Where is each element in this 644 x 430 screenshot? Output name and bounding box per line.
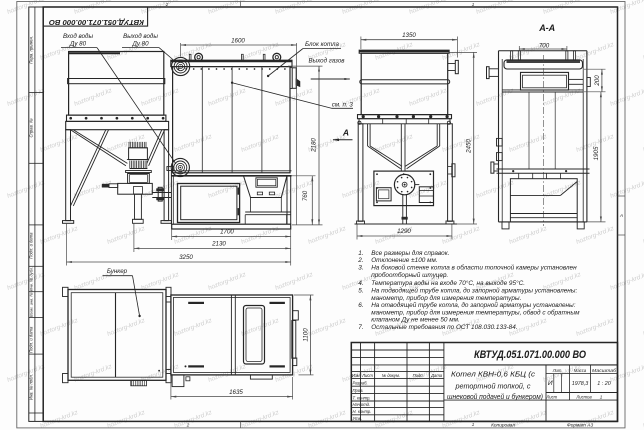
svg-text:КВТУД.051.071.00.000 ВО: КВТУД.051.071.00.000 ВО (49, 18, 144, 27)
svg-text:Котел КВН-0,6 КБЦ (с: Котел КВН-0,6 КБЦ (с (451, 370, 535, 379)
svg-text:200: 200 (594, 75, 601, 87)
svg-text:760: 760 (302, 190, 309, 201)
svg-text:Н. контр.: Н. контр. (353, 409, 372, 414)
svg-text:Дата: Дата (430, 373, 443, 378)
svg-text:Масштаб: Масштаб (592, 368, 617, 373)
svg-text:Инв. № подл.: Инв. № подл. (29, 374, 34, 400)
svg-text:Ду 80: Ду 80 (131, 41, 149, 48)
svg-text:3.: 3. (358, 265, 363, 272)
svg-text:Остальные требования по ОСТ 10: Остальные требования по ОСТ 108.030.133-… (371, 323, 517, 331)
svg-text:2130: 2130 (211, 241, 226, 248)
svg-text:ретортной топкой, с: ретортной топкой, с (455, 382, 531, 391)
svg-text:1635: 1635 (229, 389, 243, 396)
svg-text:Бункер: Бункер (107, 268, 128, 275)
svg-text:2450: 2450 (466, 139, 473, 154)
svg-text:2.: 2. (357, 257, 363, 264)
svg-text:Перв. примен.: Перв. примен. (29, 36, 34, 64)
svg-text:7.: 7. (358, 324, 363, 331)
svg-text:Отклонение ±100 мм.: Отклонение ±100 мм. (371, 257, 437, 264)
svg-text:Все размеры для справок.: Все размеры для справок. (371, 249, 449, 257)
svg-text:1100: 1100 (302, 328, 309, 342)
svg-text:1350: 1350 (402, 32, 416, 39)
svg-text:4.: 4. (358, 280, 363, 287)
svg-text:Лист: Лист (361, 373, 373, 378)
svg-text:И: И (548, 380, 553, 387)
svg-text:КВТУД.051.071.00.000 ВО: КВТУД.051.071.00.000 ВО (474, 349, 586, 361)
svg-text:1: 1 (600, 395, 603, 400)
svg-text:Листов: Листов (575, 395, 592, 400)
svg-text:1.: 1. (358, 250, 363, 257)
svg-text:Выход воды: Выход воды (123, 33, 158, 40)
svg-text:2180: 2180 (311, 138, 318, 153)
svg-text:2: 2 (165, 2, 169, 7)
svg-text:Подп. и дата: Подп. и дата (29, 232, 34, 259)
svg-text:манометр, прибор для измерения: манометр, прибор для измерения температу… (371, 309, 580, 317)
svg-text:Выход газов: Выход газов (308, 58, 345, 65)
svg-text:Лит.: Лит. (552, 368, 563, 373)
svg-text:1905: 1905 (593, 146, 600, 160)
svg-text:А: А (342, 128, 349, 138)
svg-text:А: А (619, 213, 623, 218)
svg-text:На боковой стенке котла в обла: На боковой стенке котла в области топочн… (371, 264, 577, 272)
svg-text:шнековой подачей и бункером): шнековой подачей и бункером) (447, 392, 543, 401)
svg-text:Подп. и дата: Подп. и дата (29, 326, 34, 353)
svg-text:1978,3: 1978,3 (572, 381, 589, 387)
svg-text:А-А: А-А (538, 23, 555, 33)
svg-text:Копировал: Копировал (491, 422, 515, 428)
svg-text:Изм: Изм (352, 373, 360, 378)
svg-text:1290: 1290 (397, 228, 411, 235)
svg-text:3250: 3250 (179, 254, 193, 261)
svg-text:5.: 5. (358, 288, 363, 295)
svg-text:клапаном Ду не менее 50 мм.: клапаном Ду не менее 50 мм. (371, 317, 460, 324)
svg-text:Взам. инв. №: Взам. инв. № (29, 292, 34, 317)
svg-text:На отводящей трубе котла, до з: На отводящей трубе котла, до запорной ар… (371, 301, 576, 309)
svg-text:1600: 1600 (231, 37, 245, 44)
svg-text:2: 2 (186, 423, 190, 428)
svg-text:1700: 1700 (220, 229, 234, 236)
svg-text:Пров.: Пров. (353, 388, 364, 393)
svg-text:1 : 20: 1 : 20 (597, 381, 611, 387)
svg-text:Справ. №: Справ. № (29, 118, 34, 137)
svg-text:Инв. № дубл.: Инв. № дубл. (29, 267, 34, 292)
svg-text:Температура воды на входе 70°С: Температура воды на входе 70°С, на выход… (371, 279, 525, 287)
svg-text:Ду 80: Ду 80 (69, 41, 87, 48)
svg-text:Утв.: Утв. (353, 416, 363, 421)
svg-text:Нач.отд.: Нач.отд. (353, 402, 371, 407)
svg-text:Блок котла: Блок котла (305, 41, 339, 48)
svg-text:манометр, прибор для измерения: манометр, прибор для измерения температу… (371, 294, 521, 302)
svg-text:Лист: Лист (545, 395, 557, 400)
svg-text:700: 700 (539, 42, 550, 49)
svg-text:Т. контр.: Т. контр. (353, 395, 371, 400)
svg-text:Масса: Масса (574, 368, 587, 373)
svg-text:№ докум.: № докум. (382, 373, 400, 378)
svg-text:6.: 6. (358, 302, 363, 309)
svg-text:пробоотборный штуцер.: пробоотборный штуцер. (371, 271, 448, 279)
svg-text:Разраб.: Разраб. (353, 381, 368, 386)
svg-text:см. п. 3: см. п. 3 (332, 101, 354, 108)
svg-text:На подводящей трубе котла, до: На подводящей трубе котла, до запорной а… (371, 287, 577, 295)
svg-text:Формат А3: Формат А3 (567, 422, 594, 428)
svg-text:Вход воды: Вход воды (63, 33, 93, 40)
svg-text:Подп.: Подп. (413, 373, 424, 378)
